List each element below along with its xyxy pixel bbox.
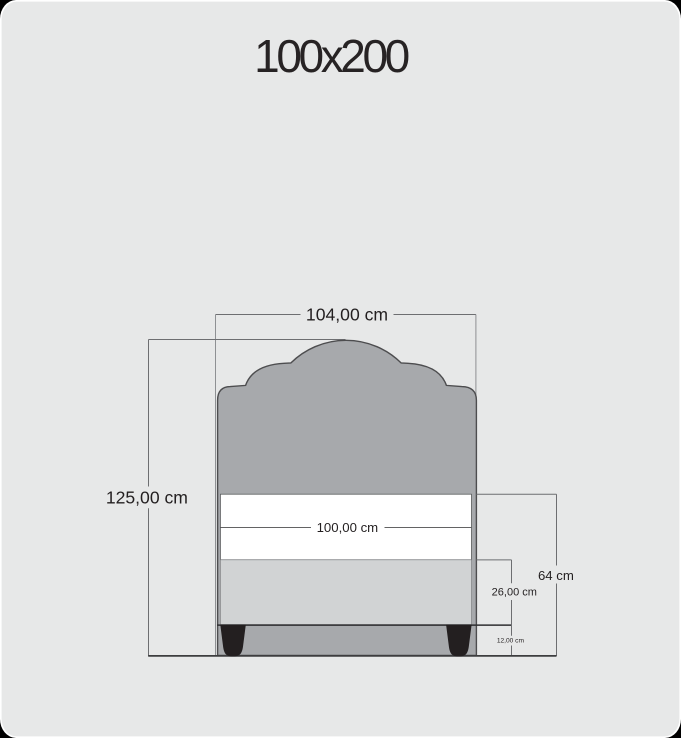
svg-text:125,00 cm: 125,00 cm xyxy=(106,488,188,508)
svg-text:100,00 cm: 100,00 cm xyxy=(317,520,379,535)
svg-text:26,00 cm: 26,00 cm xyxy=(492,587,537,599)
svg-text:104,00 cm: 104,00 cm xyxy=(306,305,388,325)
svg-text:64 cm: 64 cm xyxy=(538,568,574,583)
svg-text:100x200: 100x200 xyxy=(254,30,409,82)
svg-text:12,00 cm: 12,00 cm xyxy=(497,637,525,644)
